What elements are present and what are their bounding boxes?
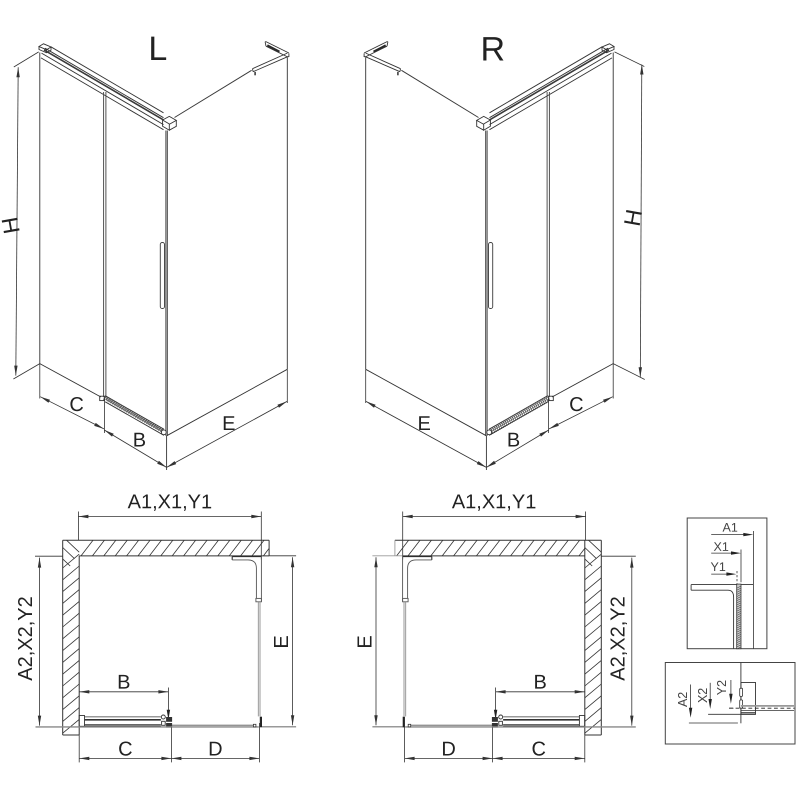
svg-text:C: C bbox=[569, 394, 583, 416]
svg-text:C: C bbox=[531, 738, 545, 760]
svg-text:B: B bbox=[507, 429, 520, 451]
svg-text:D: D bbox=[208, 738, 222, 760]
svg-text:A2: A2 bbox=[676, 692, 690, 707]
svg-text:A2,X2,Y2: A2,X2,Y2 bbox=[608, 596, 630, 681]
svg-text:X1: X1 bbox=[713, 540, 728, 554]
svg-text:B: B bbox=[117, 672, 130, 694]
svg-text:A1,X1,Y1: A1,X1,Y1 bbox=[128, 491, 213, 513]
svg-text:E: E bbox=[355, 635, 377, 648]
svg-text:D: D bbox=[441, 738, 455, 760]
svg-text:X2: X2 bbox=[696, 688, 710, 703]
svg-text:E: E bbox=[222, 413, 235, 435]
svg-text:R: R bbox=[481, 30, 506, 68]
svg-text:B: B bbox=[534, 672, 547, 694]
svg-text:A1,X1,Y1: A1,X1,Y1 bbox=[452, 491, 537, 513]
svg-text:L: L bbox=[148, 30, 167, 68]
svg-text:C: C bbox=[118, 738, 132, 760]
svg-text:A2,X2,Y2: A2,X2,Y2 bbox=[15, 596, 37, 681]
svg-text:Y1: Y1 bbox=[710, 560, 725, 574]
svg-text:C: C bbox=[69, 394, 83, 416]
svg-text:A1: A1 bbox=[722, 521, 737, 535]
svg-text:E: E bbox=[271, 635, 293, 648]
svg-text:E: E bbox=[418, 413, 431, 435]
svg-text:Y2: Y2 bbox=[715, 680, 729, 695]
svg-text:B: B bbox=[133, 429, 146, 451]
